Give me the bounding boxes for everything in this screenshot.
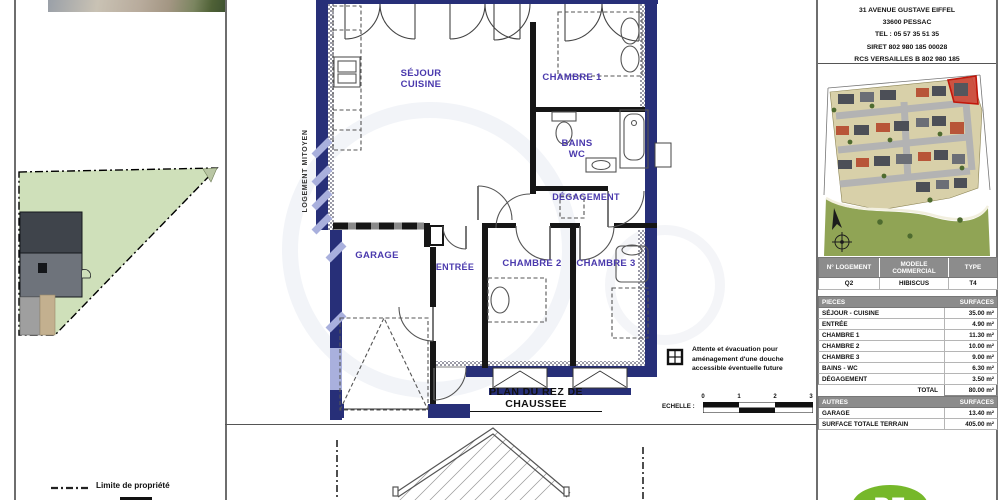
water-heater-box <box>655 143 671 167</box>
entry-closet <box>430 226 443 245</box>
scale-tick-0: 0 <box>701 394 704 400</box>
total-value: 80.00 m² <box>944 385 998 396</box>
table-row: BAINS - WC 6.30 m² <box>818 363 998 374</box>
label-degagement: DÉGAGEMENT <box>546 192 626 203</box>
label-entree: ENTRÉE <box>432 262 478 273</box>
scale-bar <box>703 402 813 413</box>
autres-table-header: AUTRES SURFACES <box>818 396 998 408</box>
label-garage: GARAGE <box>352 250 402 261</box>
table-row: DÉGAGEMENT 3.50 m² <box>818 374 998 385</box>
pieces-table: PIECES SURFACES SÉJOUR - CUISINE 35.00 m… <box>818 296 998 396</box>
header-n-logement: N° LOGEMENT <box>819 258 880 277</box>
building-roof <box>20 212 82 253</box>
pieces-total-row: TOTAL 80.00 m² <box>818 385 998 396</box>
bed-chambre2 <box>488 278 546 322</box>
header-autres: AUTRES <box>819 397 945 407</box>
table-row: SÉJOUR - CUISINE 35.00 m² <box>818 308 998 319</box>
header-type: TYPE <box>949 258 997 277</box>
cell-modele: HIBISCUS <box>880 278 949 289</box>
architectural-sheet: Limite de propriété <box>0 0 1000 500</box>
party-wall-label: LOGEMENT MITOYEN <box>302 111 314 231</box>
pieces-table-header: PIECES SURFACES <box>818 296 998 308</box>
table-row: CHAMBRE 3 9.00 m² <box>818 352 998 363</box>
label-chambre2: CHAMBRE 2 <box>498 258 566 269</box>
right-wall <box>645 0 657 377</box>
address-line: RCS VERSAILLES B 802 980 185 <box>818 54 996 66</box>
scale-tick-3: 3 <box>809 394 812 400</box>
toilet-tank <box>552 112 576 121</box>
cell-logement: Q2 <box>819 278 880 289</box>
table-row: CHAMBRE 2 10.00 m² <box>818 341 998 352</box>
label-chambre1: CHAMBRE 1 <box>536 72 608 83</box>
cell-type: T4 <box>949 278 997 289</box>
pillow <box>621 46 639 72</box>
header-surfaces: SURFACES <box>945 397 997 407</box>
label-chambre3: CHAMBRE 3 <box>572 258 640 269</box>
path-strip <box>40 295 55 335</box>
title-block: 31 AVENUE GUSTAVE EIFFEL 33600 PESSAC TE… <box>818 0 996 64</box>
shower-note-text: Attente et évacuation pour aménagement d… <box>692 345 807 374</box>
total-label: TOTAL <box>818 385 944 396</box>
scale-label: ECHELLE : <box>662 403 695 410</box>
address-line: 31 AVENUE GUSTAVE EIFFEL <box>818 5 996 17</box>
building-window <box>38 263 47 273</box>
lot-site-plan <box>15 160 220 340</box>
address-line: 33600 PESSAC <box>818 17 996 29</box>
plan-title: PLAN DU REZ DE CHAUSSEE <box>470 386 602 412</box>
label-bains-wc: BAINS WC <box>552 138 602 160</box>
shower-note-icon <box>666 348 684 366</box>
building-body <box>20 253 82 297</box>
pillow <box>491 287 509 313</box>
header-pieces: PIECES <box>819 297 945 307</box>
legend-property-limit-label: Limite de propriété <box>96 481 170 490</box>
table-row: SURFACE TOTALE TERRAIN 405.00 m² <box>818 419 998 430</box>
label-sejour-cuisine: SÉJOUR CUISINE <box>390 68 452 90</box>
table-row: CHAMBRE 1 11.30 m² <box>818 330 998 341</box>
logement-table: N° LOGEMENT MODELE COMMERCIAL TYPE Q2 HI… <box>818 257 998 290</box>
highlighted-lot-house <box>954 83 968 96</box>
top-wall <box>328 0 658 4</box>
logement-table-row: Q2 HIBISCUS T4 <box>818 278 998 290</box>
address-line: SIRET 802 980 185 00028 <box>818 42 996 54</box>
builder-logo: PZ <box>852 485 928 500</box>
legend-line-sample <box>50 483 92 493</box>
header-surfaces: SURFACES <box>945 297 997 307</box>
table-row: ENTRÉE 4.90 m² <box>818 319 998 330</box>
header-modele-commercial: MODELE COMMERCIAL <box>880 258 949 277</box>
driveway <box>20 297 40 335</box>
render-photo-sliver <box>48 0 225 12</box>
autres-table: AUTRES SURFACES GARAGE 13.40 m² SURFACE … <box>818 396 998 430</box>
table-row: GARAGE 13.40 m² <box>818 408 998 419</box>
scale-tick-1: 1 <box>737 394 740 400</box>
logement-table-header: N° LOGEMENT MODELE COMMERCIAL TYPE <box>818 257 998 278</box>
address-line: TEL : 05 57 35 51 35 <box>818 29 996 41</box>
scale-tick-2: 2 <box>773 394 776 400</box>
masterplan-image <box>820 70 996 256</box>
elevation-drawing <box>225 425 817 500</box>
